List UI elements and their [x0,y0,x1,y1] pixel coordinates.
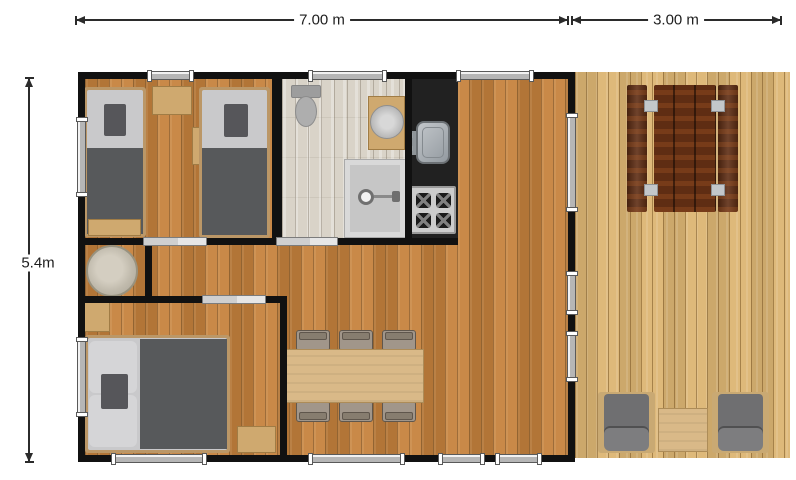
dining-chair [382,330,416,351]
armchair-seat-cushion [718,428,763,451]
window-top-bedroom [148,71,193,80]
dining-chair [296,401,330,422]
single-bed-right [199,87,270,238]
dimension-label-height: 5.4m [16,255,59,272]
wall-bathroom-kitchen [405,79,412,245]
nightstand [82,299,110,332]
kitchen-sink [416,121,450,164]
burner-icon [436,213,451,228]
single-bed-left [84,87,146,237]
pillow [104,104,126,136]
window-left-twin-bedroom [77,118,86,196]
burner-icon [436,193,451,208]
nightstand [237,426,276,453]
glass-door-to-deck [567,114,576,211]
blanket [140,339,227,449]
dimension-tick [25,461,34,463]
dining-chair [296,330,330,351]
shower-head [392,191,400,202]
window-left-double-bedroom [77,338,86,416]
dining-table [284,349,424,403]
wall-bedroom2-right [280,296,287,462]
double-bed [85,335,230,453]
dimension-tick [571,16,573,25]
window-bottom-dining [309,454,404,463]
toilet-bowl [295,96,317,127]
sliding-door-twin-bedroom [143,237,207,246]
picnic-table [654,85,716,212]
burner-icon [416,193,431,208]
floor-plan: 7.00 m 3.00 m 5.4m [0,0,796,480]
window-right-living-2 [567,332,576,381]
sliding-door-double-bedroom [202,295,266,304]
sliding-door-bathroom [276,237,338,246]
window-bottom-living-1 [439,454,484,463]
nightstand [152,86,192,115]
dining-chair [382,401,416,422]
foot-bench [88,219,141,236]
pillow [224,104,248,137]
picnic-table-bracket [711,100,725,112]
blanket [202,148,267,235]
window-right-living-1 [567,272,576,314]
deck-armchair-right [712,392,769,453]
armchair-seat-cushion [604,428,649,451]
wall-hallway-top [78,238,458,245]
wall-bedroom-bathroom [272,79,282,245]
dimension-label-main-width: 7.00 m [294,12,350,29]
burner-icon [416,213,431,228]
pillow [101,374,128,409]
stove-hob [410,186,456,234]
window-top-kitchen [457,71,533,80]
dimension-label-deck-width: 3.00 m [648,12,704,29]
dimension-tick [25,77,34,79]
shower-drain [358,189,374,205]
dining-chair [339,401,373,422]
window-top-bathroom [309,71,386,80]
dimension-tick [780,16,782,25]
arrowhead-icon [25,78,33,87]
vanity-basin [370,105,404,139]
dimension-tick [567,16,569,25]
window-bottom-bedroom [112,454,206,463]
picnic-table-bracket [644,184,658,196]
dimension-tick [75,16,77,25]
picnic-table-bracket [711,184,725,196]
arrowhead-icon [572,16,581,24]
deck-armchair-left [598,392,655,453]
window-bottom-living-2 [496,454,541,463]
picnic-table-bracket [644,100,658,112]
arrowhead-icon [76,16,85,24]
dining-chair [339,330,373,351]
wall-nook-right [145,245,152,303]
deck-side-table [658,408,708,452]
round-basin [86,245,138,297]
